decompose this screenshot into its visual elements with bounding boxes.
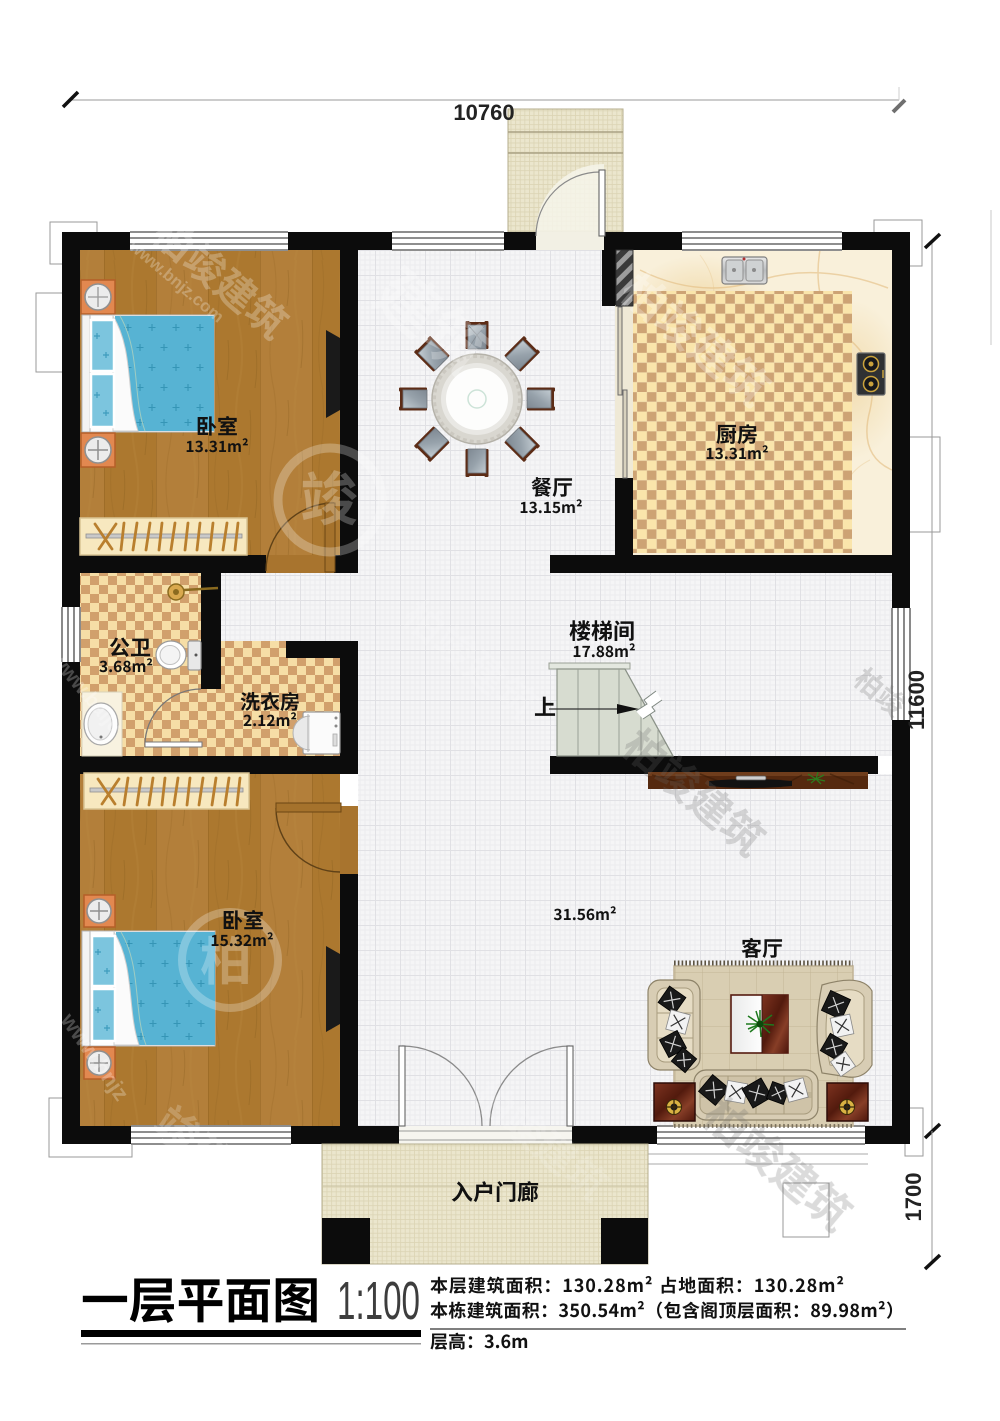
svg-text:2.12m²: 2.12m²	[243, 709, 297, 731]
svg-text:本层建筑面积：130.28m² 占地面积：130.28m²: 本层建筑面积：130.28m² 占地面积：130.28m²	[430, 1272, 844, 1298]
svg-text:客厅: 客厅	[741, 933, 783, 963]
svg-text:3.68m²: 3.68m²	[99, 655, 153, 677]
svg-text:竣: 竣	[300, 453, 358, 537]
svg-text:11600: 11600	[904, 670, 929, 730]
svg-text:本栋建筑面积：350.54m²（包含阁顶层面积：89.98m: 本栋建筑面积：350.54m²（包含阁顶层面积：89.98m²）	[430, 1297, 904, 1323]
svg-text:层高：3.6m: 层高：3.6m	[430, 1328, 528, 1354]
svg-text:15.32m²: 15.32m²	[210, 929, 273, 951]
svg-text:一层平面图: 一层平面图	[81, 1262, 320, 1333]
svg-text:10760: 10760	[453, 100, 514, 125]
svg-text:入户门廊: 入户门廊	[451, 1175, 539, 1207]
svg-text:17.88m²: 17.88m²	[572, 640, 635, 662]
svg-text:1700: 1700	[901, 1173, 926, 1222]
svg-text:31.56m²: 31.56m²	[553, 903, 616, 925]
svg-text:13.15m²: 13.15m²	[519, 496, 582, 518]
svg-text:13.31m²: 13.31m²	[185, 435, 248, 457]
svg-text:13.31m²: 13.31m²	[705, 442, 768, 464]
svg-text:上: 上	[534, 690, 556, 722]
svg-text:1:100: 1:100	[337, 1271, 420, 1331]
